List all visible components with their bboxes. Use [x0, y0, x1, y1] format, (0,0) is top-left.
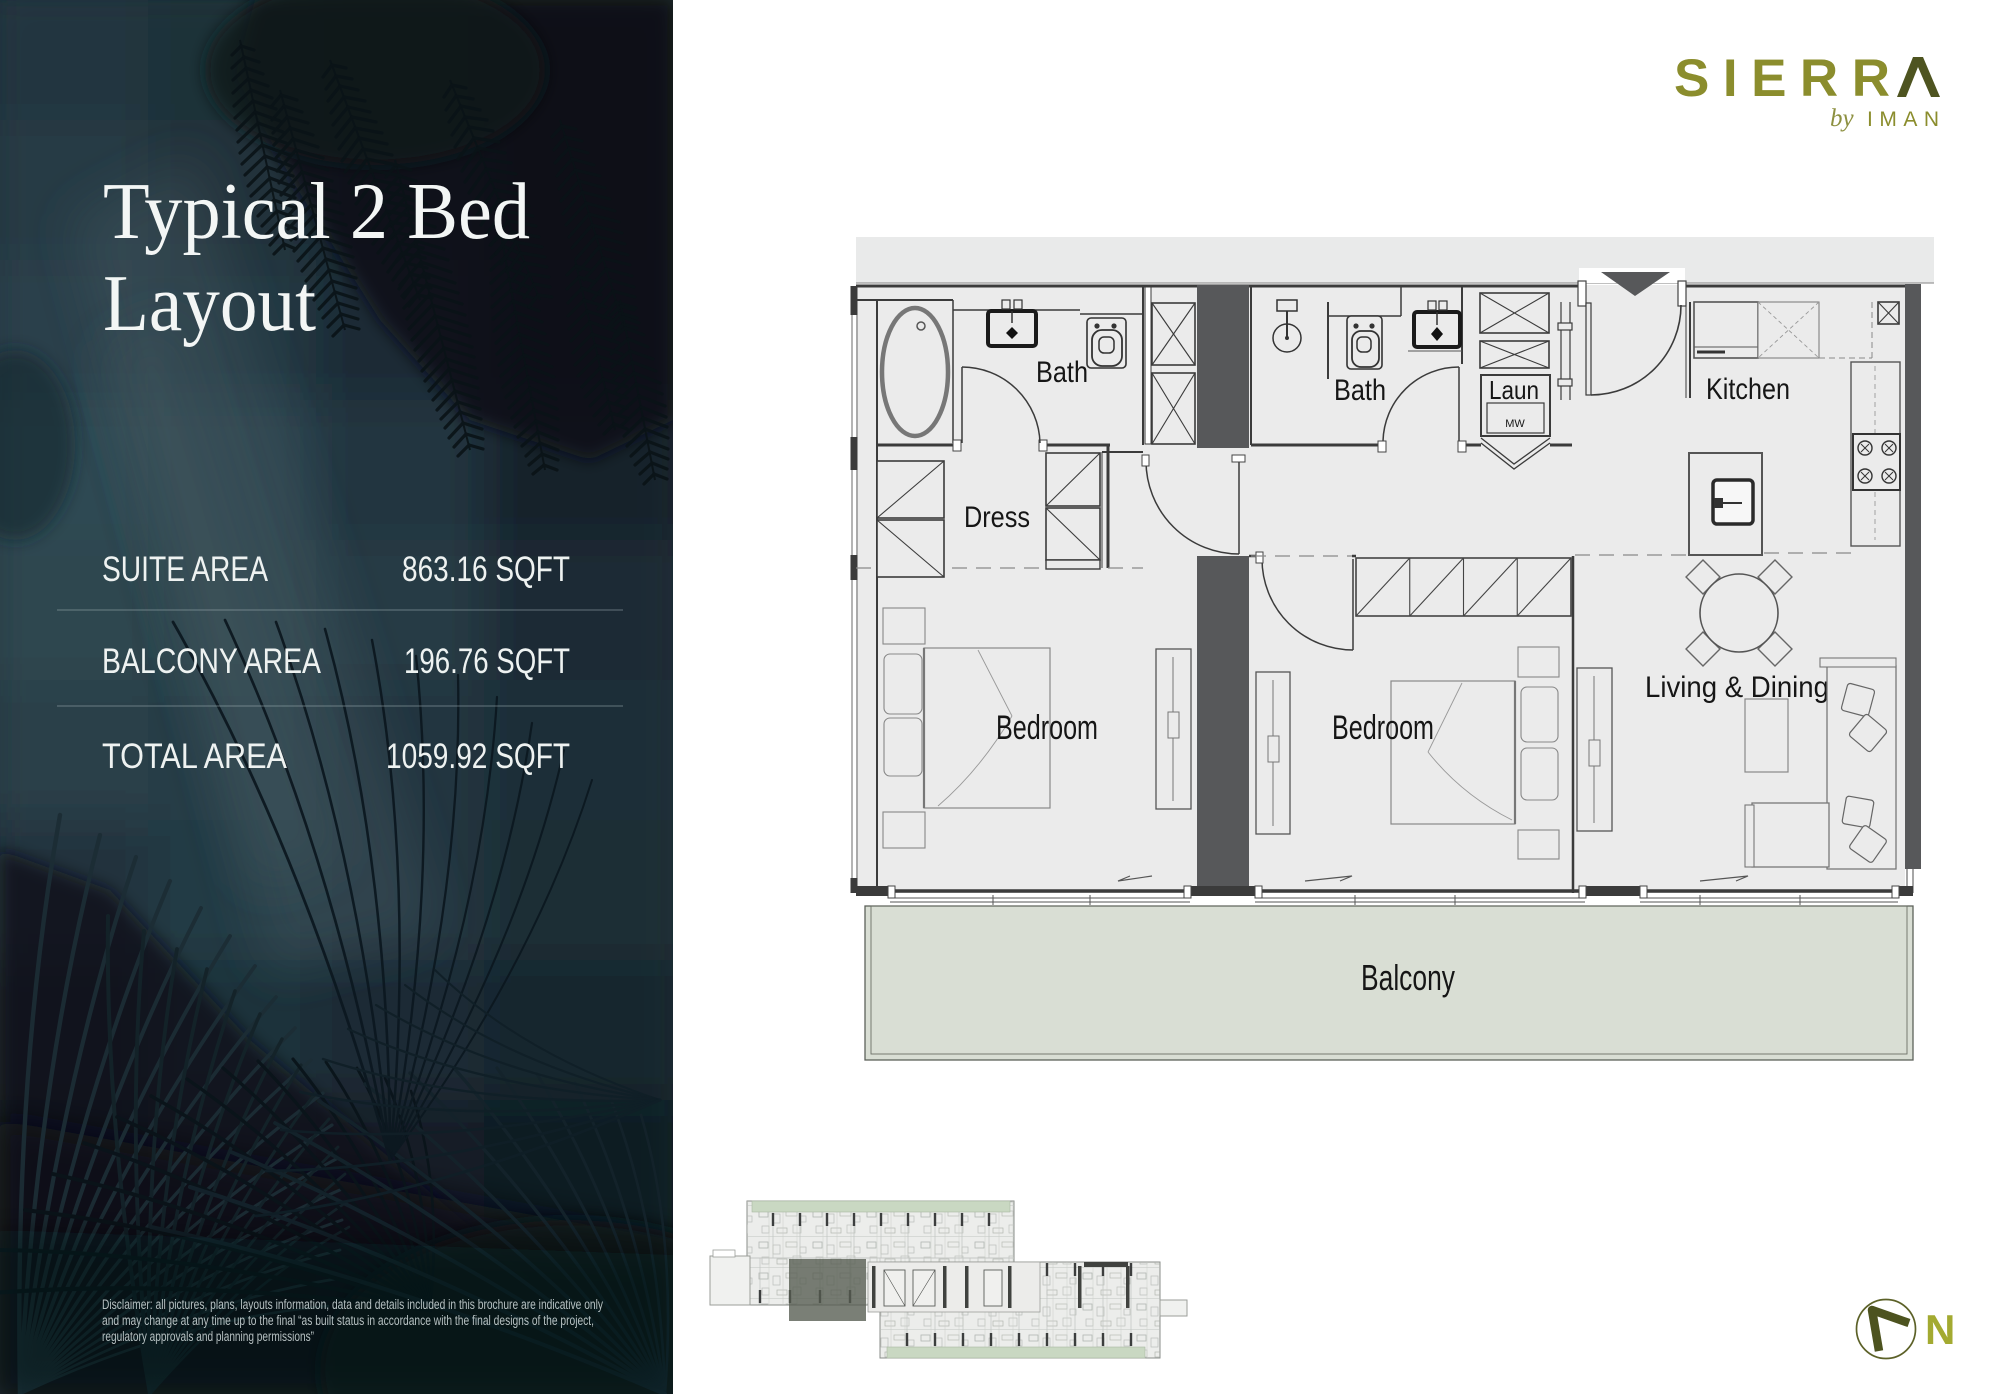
svg-text:SUITE AREA: SUITE AREA: [102, 550, 269, 589]
svg-text:863.16 SQFT: 863.16 SQFT: [402, 550, 570, 589]
svg-text:196.76 SQFT: 196.76 SQFT: [404, 642, 570, 681]
svg-text:regulatory approvals and plann: regulatory approvals and planning permis…: [102, 1329, 314, 1344]
svg-text:TOTAL AREA: TOTAL AREA: [102, 737, 288, 776]
svg-text:BALCONY AREA: BALCONY AREA: [102, 642, 322, 681]
svg-text:Balcony: Balcony: [1361, 957, 1455, 998]
svg-text:Laun: Laun: [1489, 375, 1539, 405]
svg-text:1059.92 SQFT: 1059.92 SQFT: [386, 737, 570, 776]
svg-text:Typical 2 Bed: Typical 2 Bed: [103, 168, 530, 256]
svg-text:Layout: Layout: [103, 260, 316, 348]
svg-text:Bedroom: Bedroom: [1332, 709, 1434, 747]
svg-text:Dress: Dress: [964, 501, 1030, 534]
svg-text:and may change at any time up: and may change at any time up to the fin…: [102, 1313, 594, 1328]
svg-text:Bedroom: Bedroom: [996, 709, 1098, 747]
svg-text:Kitchen: Kitchen: [1706, 373, 1790, 406]
svg-text:Disclaimer: all pictures, plan: Disclaimer: all pictures, plans, layouts…: [102, 1297, 603, 1312]
svg-text:Living & Dining: Living & Dining: [1645, 671, 1829, 704]
svg-text:N: N: [1925, 1306, 1955, 1353]
svg-text:by: by: [1830, 105, 1855, 132]
svg-text:IMAN: IMAN: [1867, 108, 1946, 131]
svg-text:Bath: Bath: [1334, 374, 1386, 407]
svg-text:SIERR: SIERR: [1674, 49, 1903, 108]
svg-text:MW: MW: [1505, 418, 1525, 430]
svg-text:Bath: Bath: [1036, 356, 1088, 389]
